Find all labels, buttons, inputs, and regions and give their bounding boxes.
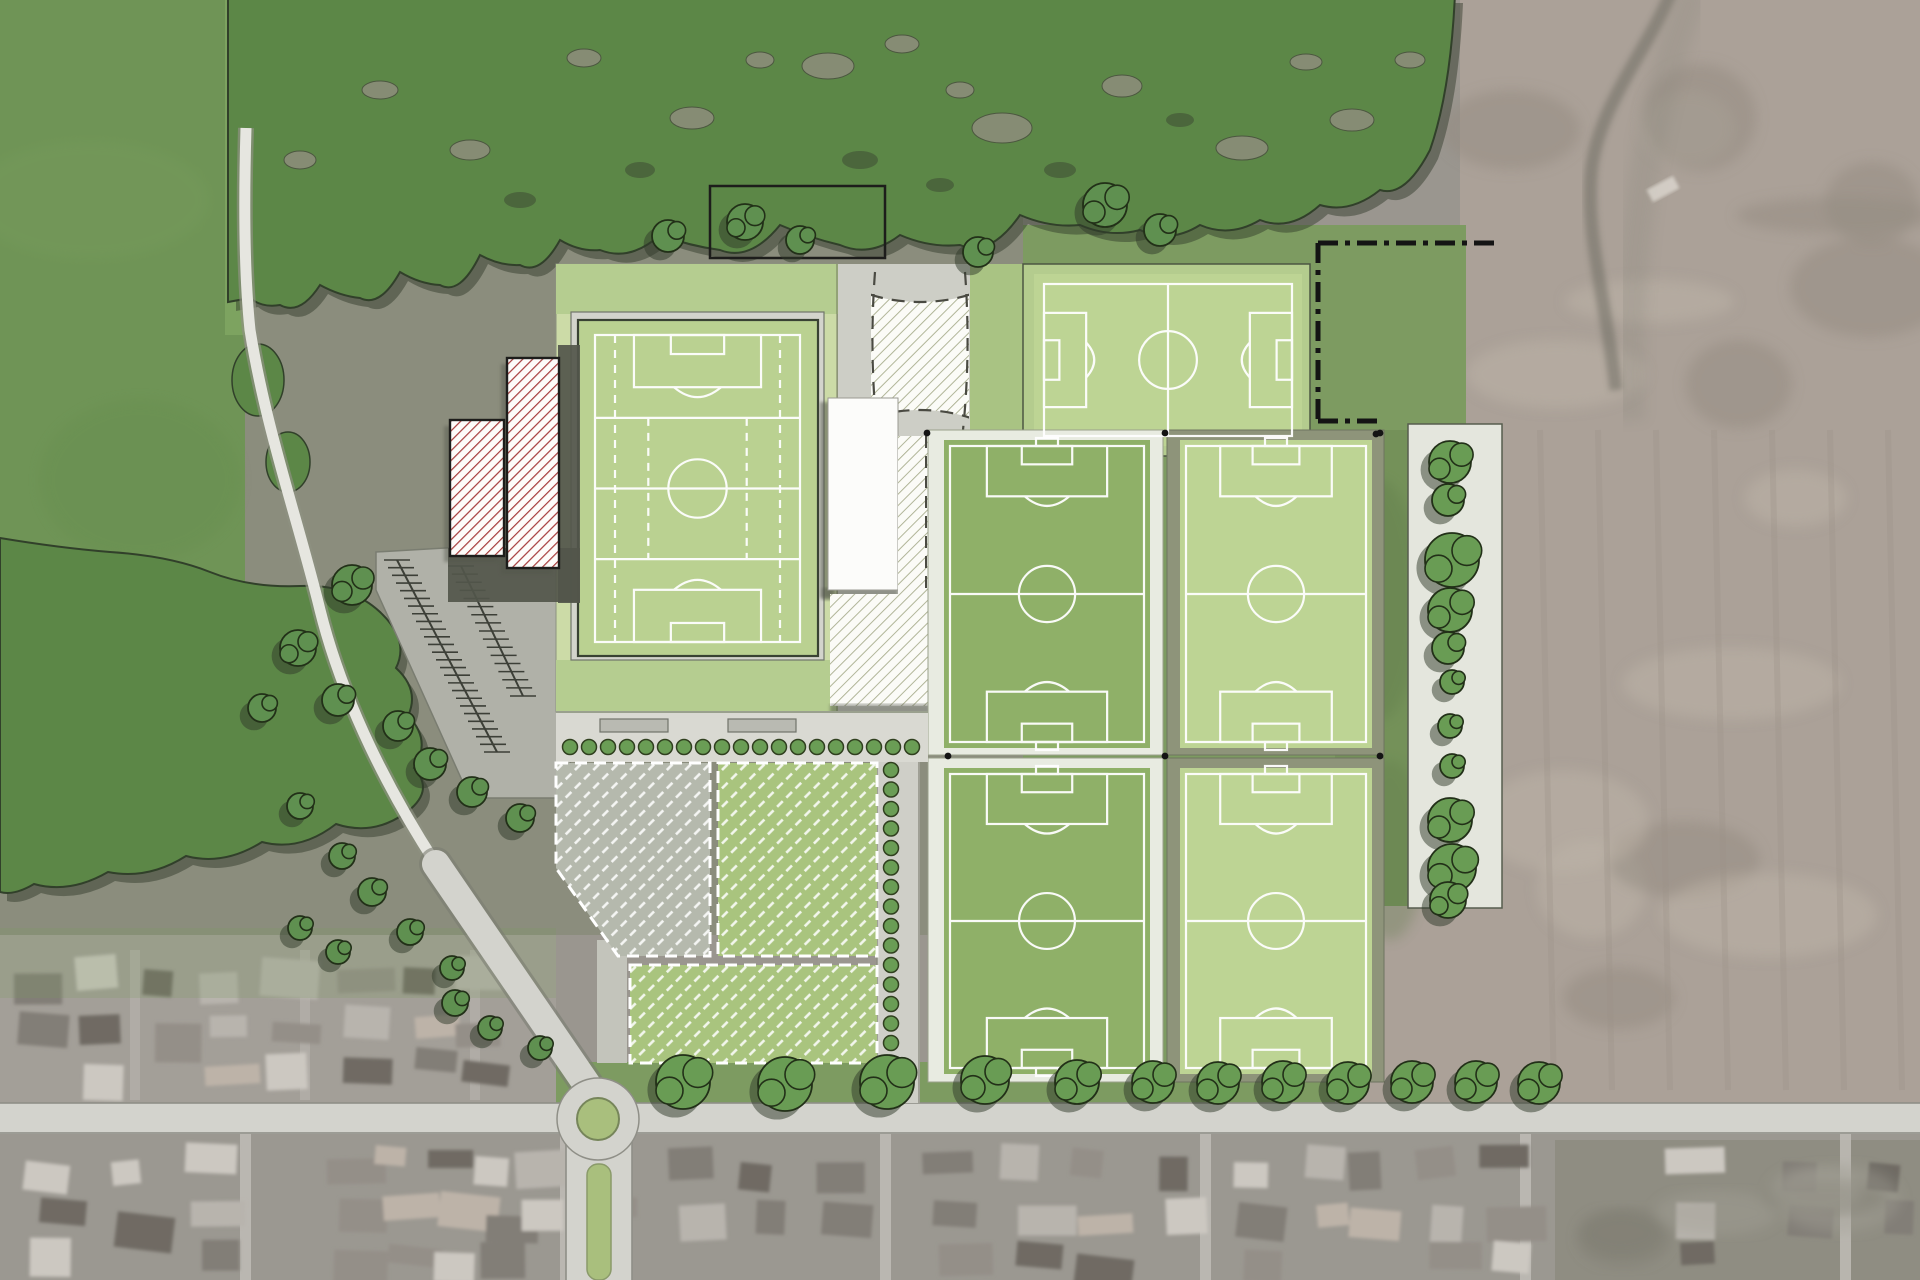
house-block (1430, 1205, 1464, 1247)
house-block (39, 1197, 87, 1226)
north-training-pitch (1023, 264, 1310, 456)
house-block (1159, 1157, 1188, 1192)
house-block (374, 1145, 406, 1166)
hedge-tree-dot (884, 1016, 899, 1031)
house-block (265, 1053, 307, 1091)
house-block (1305, 1144, 1346, 1180)
house-block (1233, 1162, 1268, 1188)
house-block (414, 1047, 457, 1073)
roundabout-island (577, 1098, 619, 1140)
house-block (738, 1162, 772, 1192)
south-walkway (876, 762, 920, 1103)
planter (728, 719, 796, 732)
hedge-tree-dot (810, 740, 825, 755)
hedge-tree-dot (884, 802, 899, 817)
house-block (17, 1011, 70, 1048)
house-block (1077, 1213, 1133, 1235)
house-block (83, 1064, 124, 1101)
house-block (1348, 1207, 1401, 1241)
corner-dot (924, 430, 931, 437)
masterplan-svg (0, 0, 1920, 1280)
house-block (185, 1142, 238, 1174)
hedge-tree-dot (884, 1036, 899, 1051)
house-block (204, 1064, 260, 1086)
house-block (1165, 1197, 1207, 1235)
hedge-tree-dot (829, 740, 844, 755)
house-block (939, 1243, 994, 1276)
promenade (556, 711, 928, 762)
house-block (434, 1252, 475, 1280)
hedge-tree-dot (772, 740, 787, 755)
hedge-tree-dot (620, 740, 635, 755)
house-block (428, 1150, 473, 1168)
house-block (1491, 1241, 1531, 1274)
house-block (1479, 1145, 1529, 1168)
east-tree-belt (1408, 424, 1502, 926)
hedge-tree-dot (884, 938, 899, 953)
hedge-tree-dot (884, 763, 899, 778)
hedge-tree-dot (677, 740, 692, 755)
pavilion-building (828, 398, 898, 590)
hedge-tree-dot (563, 740, 578, 755)
hedge-tree-dot (753, 740, 768, 755)
corner-dot (1162, 753, 1169, 760)
hedge-tree-dot (658, 740, 673, 755)
house-block (111, 1159, 141, 1186)
hedge-tree-dot (734, 740, 749, 755)
house-block (473, 1156, 509, 1187)
corner-dot (1162, 430, 1169, 437)
hedge-tree-dot (884, 880, 899, 895)
hedge-tree-dot (905, 740, 920, 755)
hedge-tree-dot (715, 740, 730, 755)
hedge-tree-dot (848, 740, 863, 755)
house-block (821, 1201, 874, 1238)
hedge-tree-dot (884, 958, 899, 973)
hedge-tree-dot (867, 740, 882, 755)
house-block (816, 1162, 864, 1193)
corner-dot (1377, 753, 1384, 760)
house-block (22, 1161, 70, 1195)
hedge-tree-dot (884, 919, 899, 934)
house-block (1243, 1249, 1282, 1280)
grandstand-building (507, 358, 559, 568)
house-block (1000, 1143, 1040, 1181)
house-block (480, 1242, 525, 1279)
house-block (339, 1198, 388, 1232)
hedge-tree-dot (884, 821, 899, 836)
hedge-tree-dot (884, 860, 899, 875)
house-block (1414, 1146, 1456, 1181)
house-block (522, 1200, 564, 1231)
house-block (1429, 1242, 1482, 1270)
house-block (382, 1193, 440, 1221)
house-block (114, 1211, 176, 1253)
hedge-tree-dot (884, 841, 899, 856)
hedge-tree-dot (884, 977, 899, 992)
house-block (78, 1014, 120, 1045)
house-block (191, 1201, 245, 1227)
house-block (679, 1203, 727, 1241)
site-plan-canvas (0, 0, 1920, 1280)
house-block (155, 1023, 202, 1063)
house-block (1235, 1202, 1287, 1242)
clubhouse-building (450, 420, 504, 556)
house-block (1070, 1147, 1104, 1178)
hedge-tree-dot (886, 740, 901, 755)
hedge-tree-dot (884, 782, 899, 797)
main-road (0, 1103, 1920, 1134)
house-block (1015, 1241, 1063, 1270)
house-block (932, 1200, 977, 1228)
house-block (202, 1240, 239, 1271)
house-block (210, 1015, 247, 1037)
hedge-tree-dot (582, 740, 597, 755)
house-block (1680, 1241, 1715, 1265)
house-block (333, 1250, 388, 1280)
house-block (1316, 1203, 1349, 1228)
house-block (343, 1004, 390, 1039)
planter (600, 719, 668, 732)
house-block (1486, 1206, 1547, 1242)
house-block (30, 1238, 71, 1277)
house-block (1348, 1151, 1382, 1190)
house-block (1018, 1206, 1077, 1236)
house-block (668, 1146, 714, 1180)
house-block (272, 1022, 322, 1045)
hedge-tree-dot (696, 740, 711, 755)
house-block (922, 1151, 973, 1174)
hedge-tree-dot (639, 740, 654, 755)
house-block (756, 1200, 786, 1235)
covered-terrace (830, 594, 928, 706)
covered-walkway (898, 436, 928, 594)
median-strip (587, 1164, 611, 1280)
house-block (343, 1057, 393, 1084)
house-block (1665, 1147, 1725, 1175)
hedge-tree-dot (601, 740, 616, 755)
hedge-tree-dot (884, 899, 899, 914)
hedge-tree-dot (884, 997, 899, 1012)
corner-dot (945, 753, 952, 760)
hedge-tree-dot (791, 740, 806, 755)
